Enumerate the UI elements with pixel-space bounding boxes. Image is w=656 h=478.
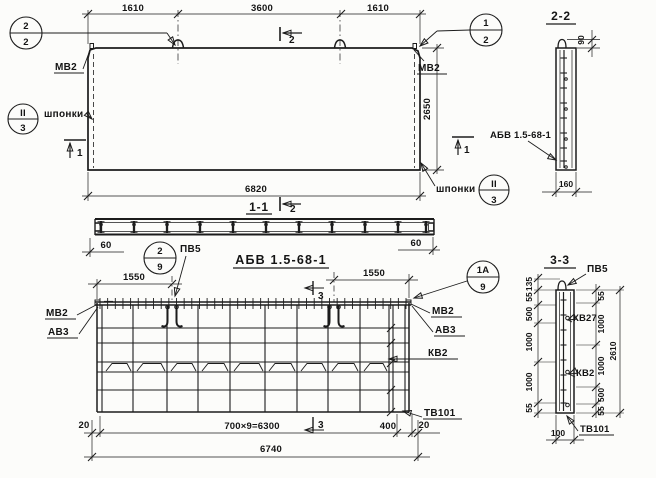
dim-160: 160 — [559, 179, 573, 189]
corner-anchor-icon — [90, 44, 94, 49]
label-shponki-left: шпонки — [44, 109, 83, 120]
label-mv2-mesh-left: МВ2 — [46, 308, 68, 319]
dim-1000-l2: 1000 — [524, 372, 534, 391]
label-tv101-mesh: ТВ101 — [424, 408, 456, 419]
callout-1-2: 1 2 — [420, 14, 502, 46]
section-1-1-view: 1-1 2 60 60 — [82, 197, 440, 257]
dim-400: 400 — [380, 421, 396, 432]
dim-2650: 2650 — [422, 98, 433, 120]
svg-text:1: 1 — [483, 18, 489, 29]
svg-text:9: 9 — [157, 262, 162, 273]
svg-text:2: 2 — [23, 37, 28, 48]
dim-1610-left: 1610 — [122, 3, 144, 14]
svg-text:II: II — [491, 179, 497, 190]
svg-text:3: 3 — [491, 195, 496, 206]
dim-6820: 6820 — [245, 184, 267, 195]
label-abv-2-2: АБВ 1.5-68-1 — [490, 130, 551, 141]
assembly-title: АБВ 1.5-68-1 — [235, 253, 326, 267]
svg-text:3: 3 — [318, 420, 324, 431]
node-callout-left: II 3 — [8, 104, 38, 134]
section-2-2-view: 2-2 90 160 АБВ 1.5-68-1 — [490, 9, 600, 197]
keyway-notch — [429, 224, 434, 231]
panel-drawing: 1610 3600 1610 2650 6820 2 2 1 2 — [0, 0, 656, 478]
svg-text:3: 3 — [20, 123, 25, 134]
callout-2-9: 2 9 — [144, 242, 176, 274]
dim-20-right: 20 — [419, 420, 430, 431]
lifting-loop-icon — [558, 40, 566, 49]
dim-500-r: 500 — [596, 388, 606, 402]
dim-3600: 3600 — [251, 3, 273, 14]
callout-1a-9: 1А 9 — [467, 261, 499, 293]
svg-text:2: 2 — [157, 246, 162, 257]
svg-text:3: 3 — [318, 291, 324, 302]
dim-55-r1: 55 — [596, 291, 606, 301]
label-shponki-right: шпонки — [436, 184, 475, 195]
svg-text:1: 1 — [77, 148, 83, 159]
label-av3-mesh-right: АВ3 — [435, 325, 456, 336]
callout-2-2: 2 2 — [10, 17, 175, 49]
label-pv5-mesh: ПВ5 — [180, 244, 201, 255]
label-kv2-33: КВ2 — [576, 368, 595, 379]
dim-100: 100 — [551, 428, 565, 438]
section-3-3-title: 3-3 — [550, 253, 570, 267]
dim-1000-r2: 1000 — [596, 356, 606, 375]
dim-55-l2: 55 — [524, 403, 534, 413]
dim-90: 90 — [576, 35, 586, 45]
svg-text:2: 2 — [483, 35, 488, 46]
facade-view: 1610 3600 1610 2650 6820 2 2 1 2 — [8, 3, 509, 206]
label-mv2-top-right: МВ2 — [418, 63, 440, 74]
dim-135: 135 — [524, 277, 534, 291]
panel-outline — [88, 48, 420, 170]
dim-55-l1: 55 — [524, 292, 534, 302]
node-callout-right: II 3 — [479, 175, 509, 206]
label-av3-mesh-left: АВ3 — [48, 327, 69, 338]
label-pv5-33: ПВ5 — [587, 264, 608, 275]
dim-60-right: 60 — [411, 238, 422, 249]
svg-text:1А: 1А — [477, 265, 490, 276]
label-mv2-top-left: МВ2 — [55, 62, 77, 73]
lifting-loop-icon — [558, 281, 566, 290]
dim-20-left: 20 — [79, 420, 90, 431]
section-2-2-title: 2-2 — [551, 9, 571, 23]
label-mv2-mesh-right: МВ2 — [432, 306, 454, 317]
svg-text:1: 1 — [464, 145, 470, 156]
mesh-view: 1550 1550 2 9 ПВ5 1А 9 МВ2 АВ3 МВ2 — [45, 242, 499, 461]
dim-60-left: 60 — [101, 240, 112, 251]
section-3-3-view: 3-3 ПВ5 КВ27 КВ2 ТВ101 135 55 500 1000 1… — [524, 253, 624, 444]
dim-2610: 2610 — [608, 341, 618, 360]
dim-1610-right: 1610 — [367, 3, 389, 14]
dim-500-l: 500 — [524, 307, 534, 321]
dim-spacing: 700×9=6300 — [224, 421, 279, 432]
dim-1550-left: 1550 — [123, 272, 145, 283]
svg-text:II: II — [20, 108, 26, 119]
dim-1550-right: 1550 — [363, 268, 385, 279]
corner-anchor-icon — [413, 44, 417, 49]
svg-text:2: 2 — [289, 35, 295, 46]
svg-text:9: 9 — [480, 282, 485, 293]
dim-1000-l1: 1000 — [524, 332, 534, 351]
dim-6740: 6740 — [260, 444, 282, 455]
drawing-sheet: 1610 3600 1610 2650 6820 2 2 1 2 — [0, 0, 656, 478]
label-kv2-mesh: КВ2 — [428, 348, 448, 359]
svg-text:2: 2 — [23, 21, 28, 32]
dim-1000-r1: 1000 — [596, 314, 606, 333]
section-1-1-title: 1-1 — [249, 200, 269, 214]
label-tv101-33: ТВ101 — [580, 424, 610, 435]
